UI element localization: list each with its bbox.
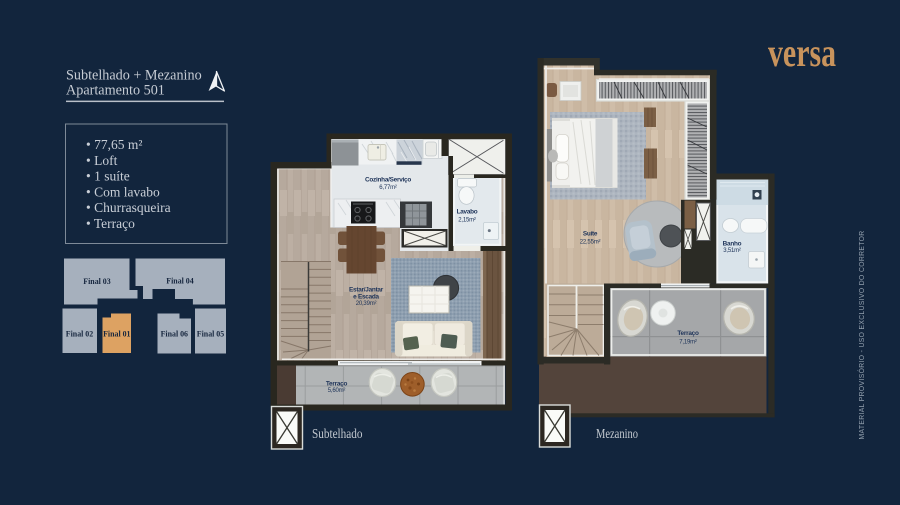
- svg-text:6,77m²: 6,77m²: [379, 185, 397, 191]
- svg-text:7,19m²: 7,19m²: [679, 340, 697, 346]
- svg-text:Final 06: Final 06: [161, 330, 188, 339]
- svg-text:22,55m²: 22,55m²: [580, 240, 601, 246]
- svg-text:Terraço: Terraço: [326, 381, 348, 388]
- svg-text:• 1 suíte: • 1 suíte: [86, 169, 130, 184]
- svg-text:Final 05: Final 05: [197, 330, 224, 339]
- svg-text:Cozinha/Serviço: Cozinha/Serviço: [365, 177, 411, 184]
- svg-text:Mezanino: Mezanino: [596, 427, 638, 442]
- svg-text:• Churrasqueira: • Churrasqueira: [86, 200, 171, 215]
- svg-text:3,51m²: 3,51m²: [723, 248, 741, 254]
- svg-text:Estar/Jantar: Estar/Jantar: [349, 287, 384, 294]
- svg-text:Final 03: Final 03: [83, 277, 110, 286]
- svg-text:• Terraço: • Terraço: [86, 216, 135, 231]
- svg-text:Lavabo: Lavabo: [457, 209, 478, 216]
- svg-text:Terraço: Terraço: [677, 330, 699, 337]
- svg-text:Subtelhado: Subtelhado: [312, 427, 363, 442]
- svg-text:MATERIAL PROVISÓRIO - USO EXCL: MATERIAL PROVISÓRIO - USO EXCLUSIVO DO C…: [857, 231, 866, 440]
- svg-text:Final 04: Final 04: [166, 277, 193, 286]
- svg-text:e Escada: e Escada: [353, 294, 379, 301]
- svg-text:Suíte: Suíte: [583, 231, 598, 238]
- svg-text:5,60m²: 5,60m²: [328, 388, 346, 394]
- svg-text:• Loft: • Loft: [86, 153, 118, 168]
- svg-text:20,39m²: 20,39m²: [356, 301, 377, 307]
- svg-text:Apartamento 501: Apartamento 501: [66, 83, 165, 99]
- svg-text:versa: versa: [768, 30, 836, 75]
- svg-text:2,15m²: 2,15m²: [458, 218, 476, 224]
- svg-text:Subtelhado + Mezanino: Subtelhado + Mezanino: [66, 68, 202, 84]
- svg-text:• Com lavabo: • Com lavabo: [86, 184, 160, 199]
- svg-text:Final 02: Final 02: [66, 330, 93, 339]
- svg-text:Banho: Banho: [723, 241, 742, 248]
- svg-text:• 77,65 m²: • 77,65 m²: [86, 137, 142, 152]
- svg-text:Final 01: Final 01: [103, 330, 130, 339]
